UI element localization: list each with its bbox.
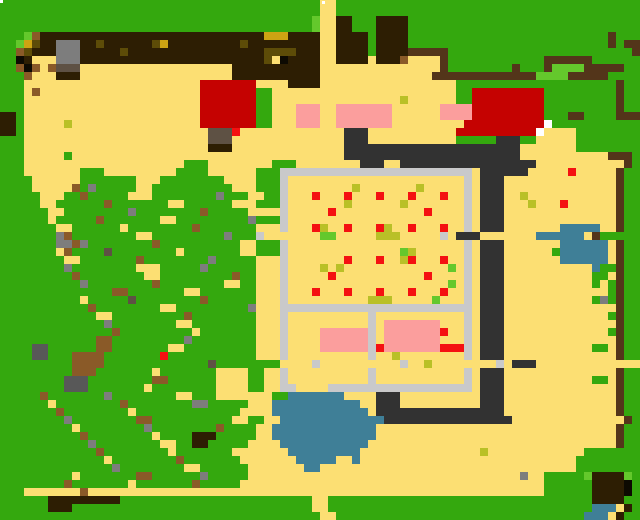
- white-marker-top-left: [0, 0, 3, 3]
- game-map-viewport: [0, 0, 640, 520]
- white-marker-top-center: [322, 1, 325, 4]
- farm-map-canvas[interactable]: [0, 0, 640, 520]
